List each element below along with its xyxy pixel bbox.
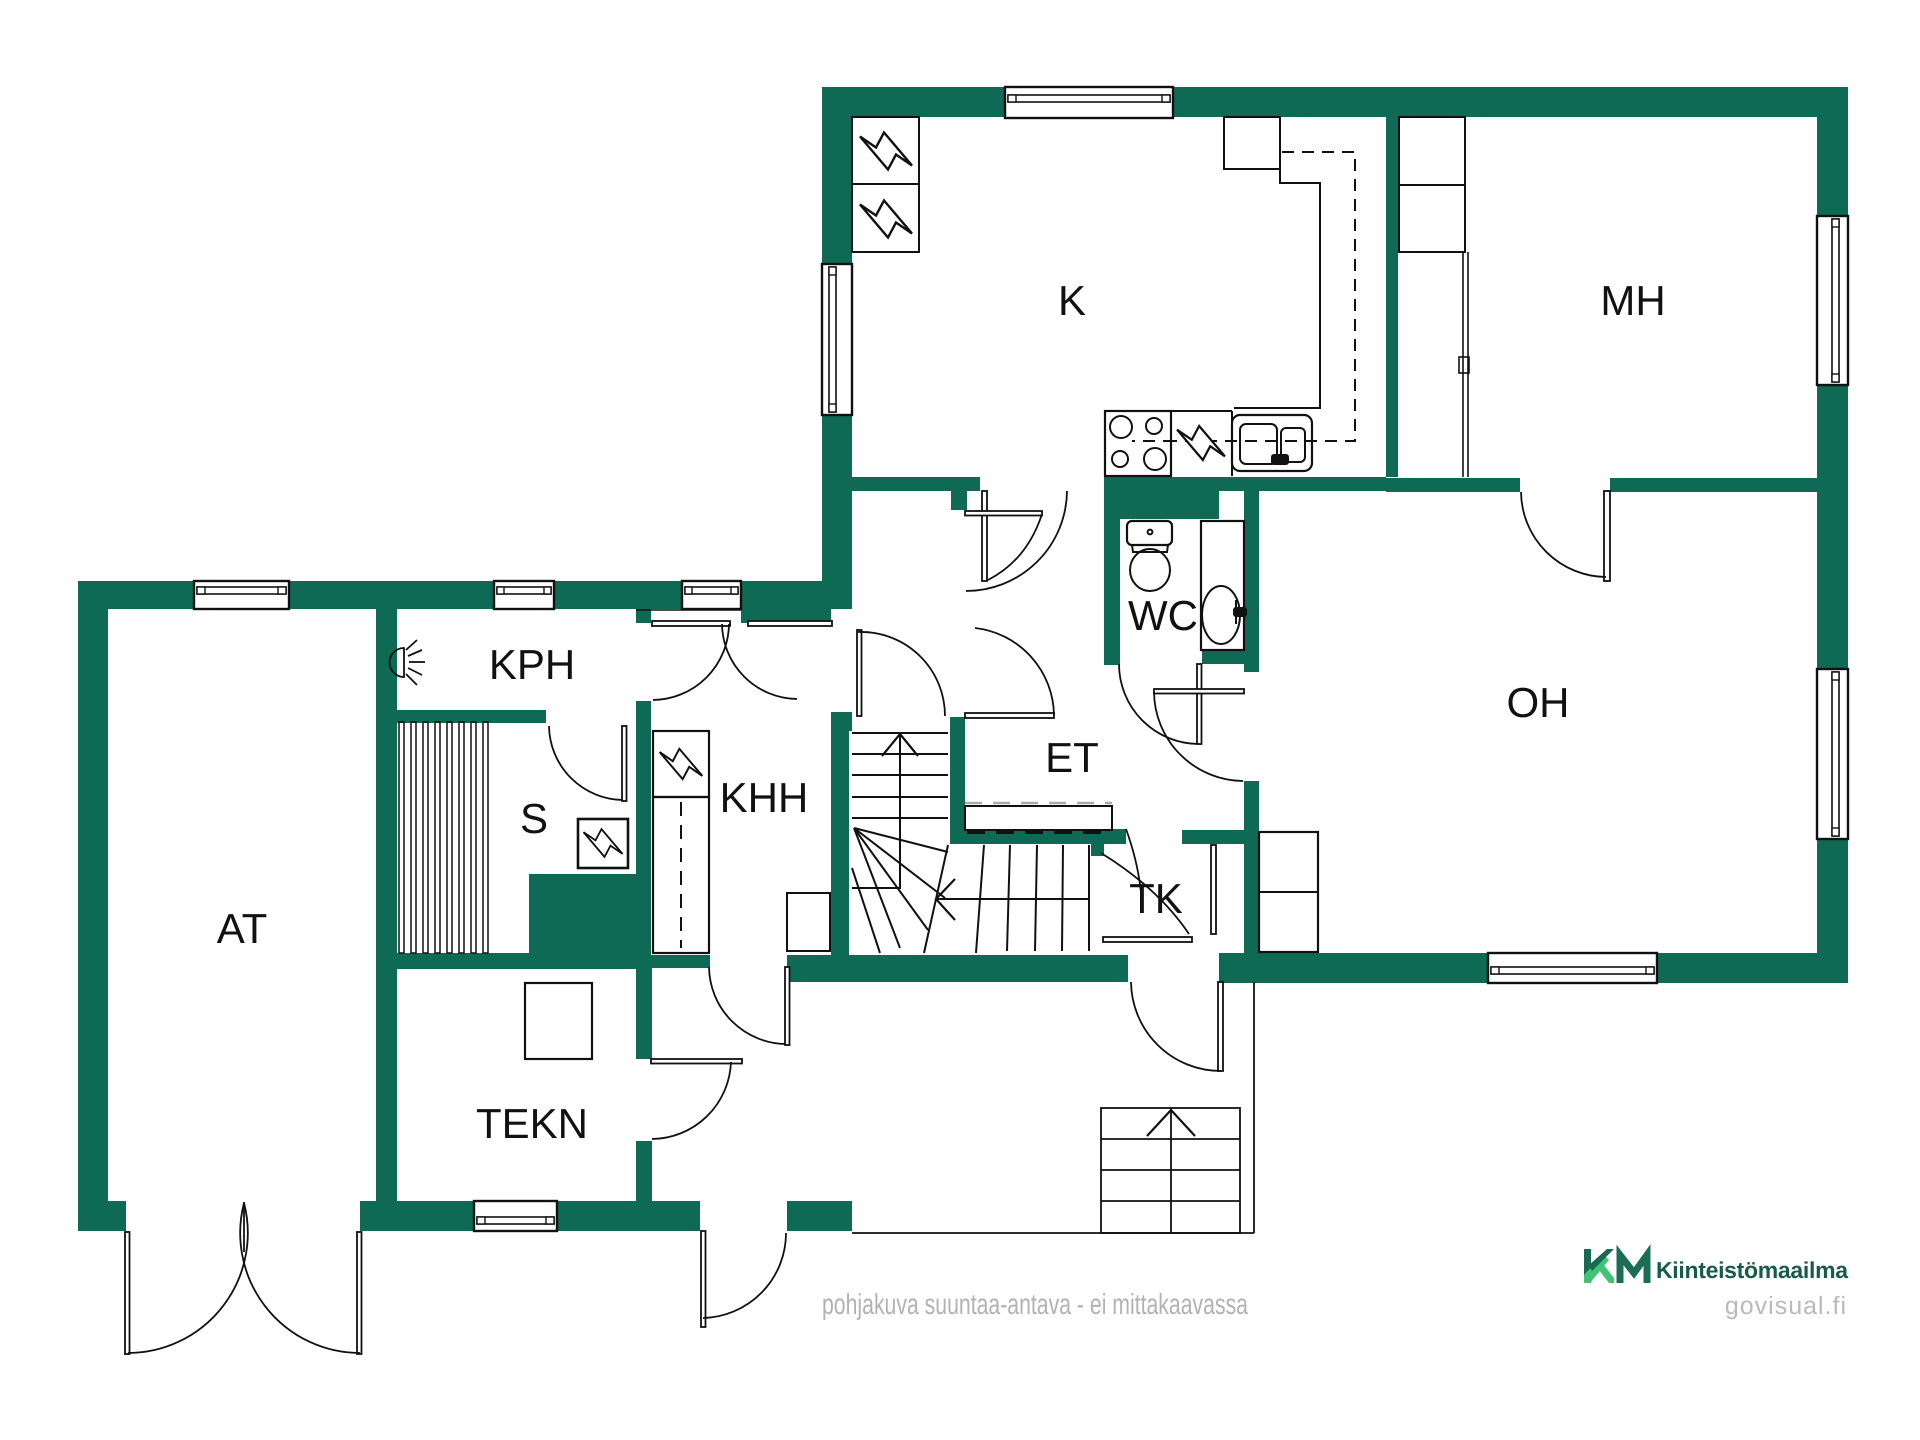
svg-text:govisual.fi: govisual.fi: [1725, 1292, 1847, 1320]
svg-text:TEKN: TEKN: [476, 1100, 588, 1147]
svg-text:S: S: [520, 795, 548, 842]
svg-text:KPH: KPH: [489, 641, 575, 688]
svg-text:WC: WC: [1128, 592, 1198, 639]
svg-text:K: K: [1058, 277, 1086, 324]
svg-text:pohjakuva suuntaa-antava - ei: pohjakuva suuntaa-antava - ei mittakaava…: [822, 1289, 1249, 1321]
svg-text:KHH: KHH: [720, 774, 809, 821]
svg-text:MH: MH: [1600, 277, 1665, 324]
svg-text:AT: AT: [217, 905, 268, 952]
svg-text:Kiinteistömaailma: Kiinteistömaailma: [1656, 1257, 1848, 1283]
svg-text:OH: OH: [1507, 679, 1570, 726]
svg-text:TK: TK: [1129, 875, 1183, 922]
svg-text:ET: ET: [1045, 734, 1099, 781]
